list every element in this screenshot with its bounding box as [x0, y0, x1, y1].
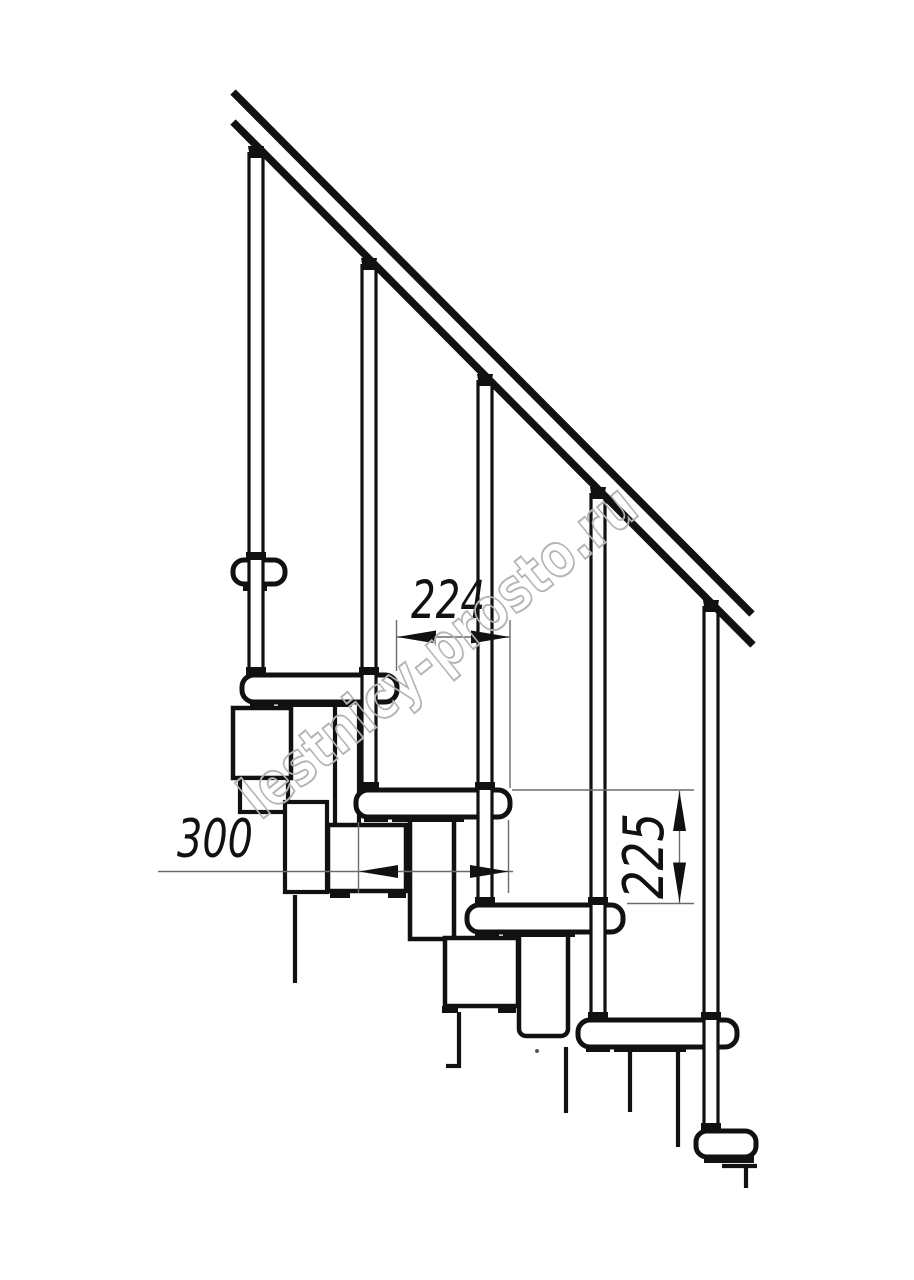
- baluster-collar: [359, 782, 379, 790]
- baluster-1: [246, 146, 266, 675]
- baluster-collar: [246, 552, 266, 560]
- spine-square-2: [328, 825, 406, 891]
- watermark-text: lestnicy-prosto.ru: [226, 470, 651, 832]
- baluster-5: [701, 600, 721, 1131]
- dim-label-tread-length: 300: [177, 809, 253, 870]
- spine-tab: [330, 891, 350, 898]
- baluster-collar: [475, 782, 495, 790]
- spine-plate-2l: [285, 802, 327, 892]
- baluster-collar: [475, 897, 495, 905]
- staircase-technical-drawing: 224 300 225 lestnicy-prosto.ru: [0, 0, 914, 1280]
- baluster-collar: [588, 897, 608, 905]
- tread-5-partial: [696, 1131, 756, 1157]
- baluster-collar: [246, 667, 266, 675]
- baluster-collar: [701, 1123, 721, 1131]
- spine-tab: [498, 1006, 516, 1013]
- baluster-collar: [701, 1012, 721, 1020]
- baluster-collar: [588, 1012, 608, 1020]
- spine-square-3: [445, 938, 518, 1006]
- drawing-canvas: 224 300 225 lestnicy-prosto.ru: [0, 0, 914, 1280]
- spine-tab: [388, 891, 406, 898]
- spine-tab: [442, 1006, 458, 1013]
- spine-tube-3: [519, 930, 568, 1036]
- spine-tube-2: [410, 815, 454, 939]
- dim-label-step-height: 225: [612, 813, 677, 899]
- speck: [535, 1049, 539, 1053]
